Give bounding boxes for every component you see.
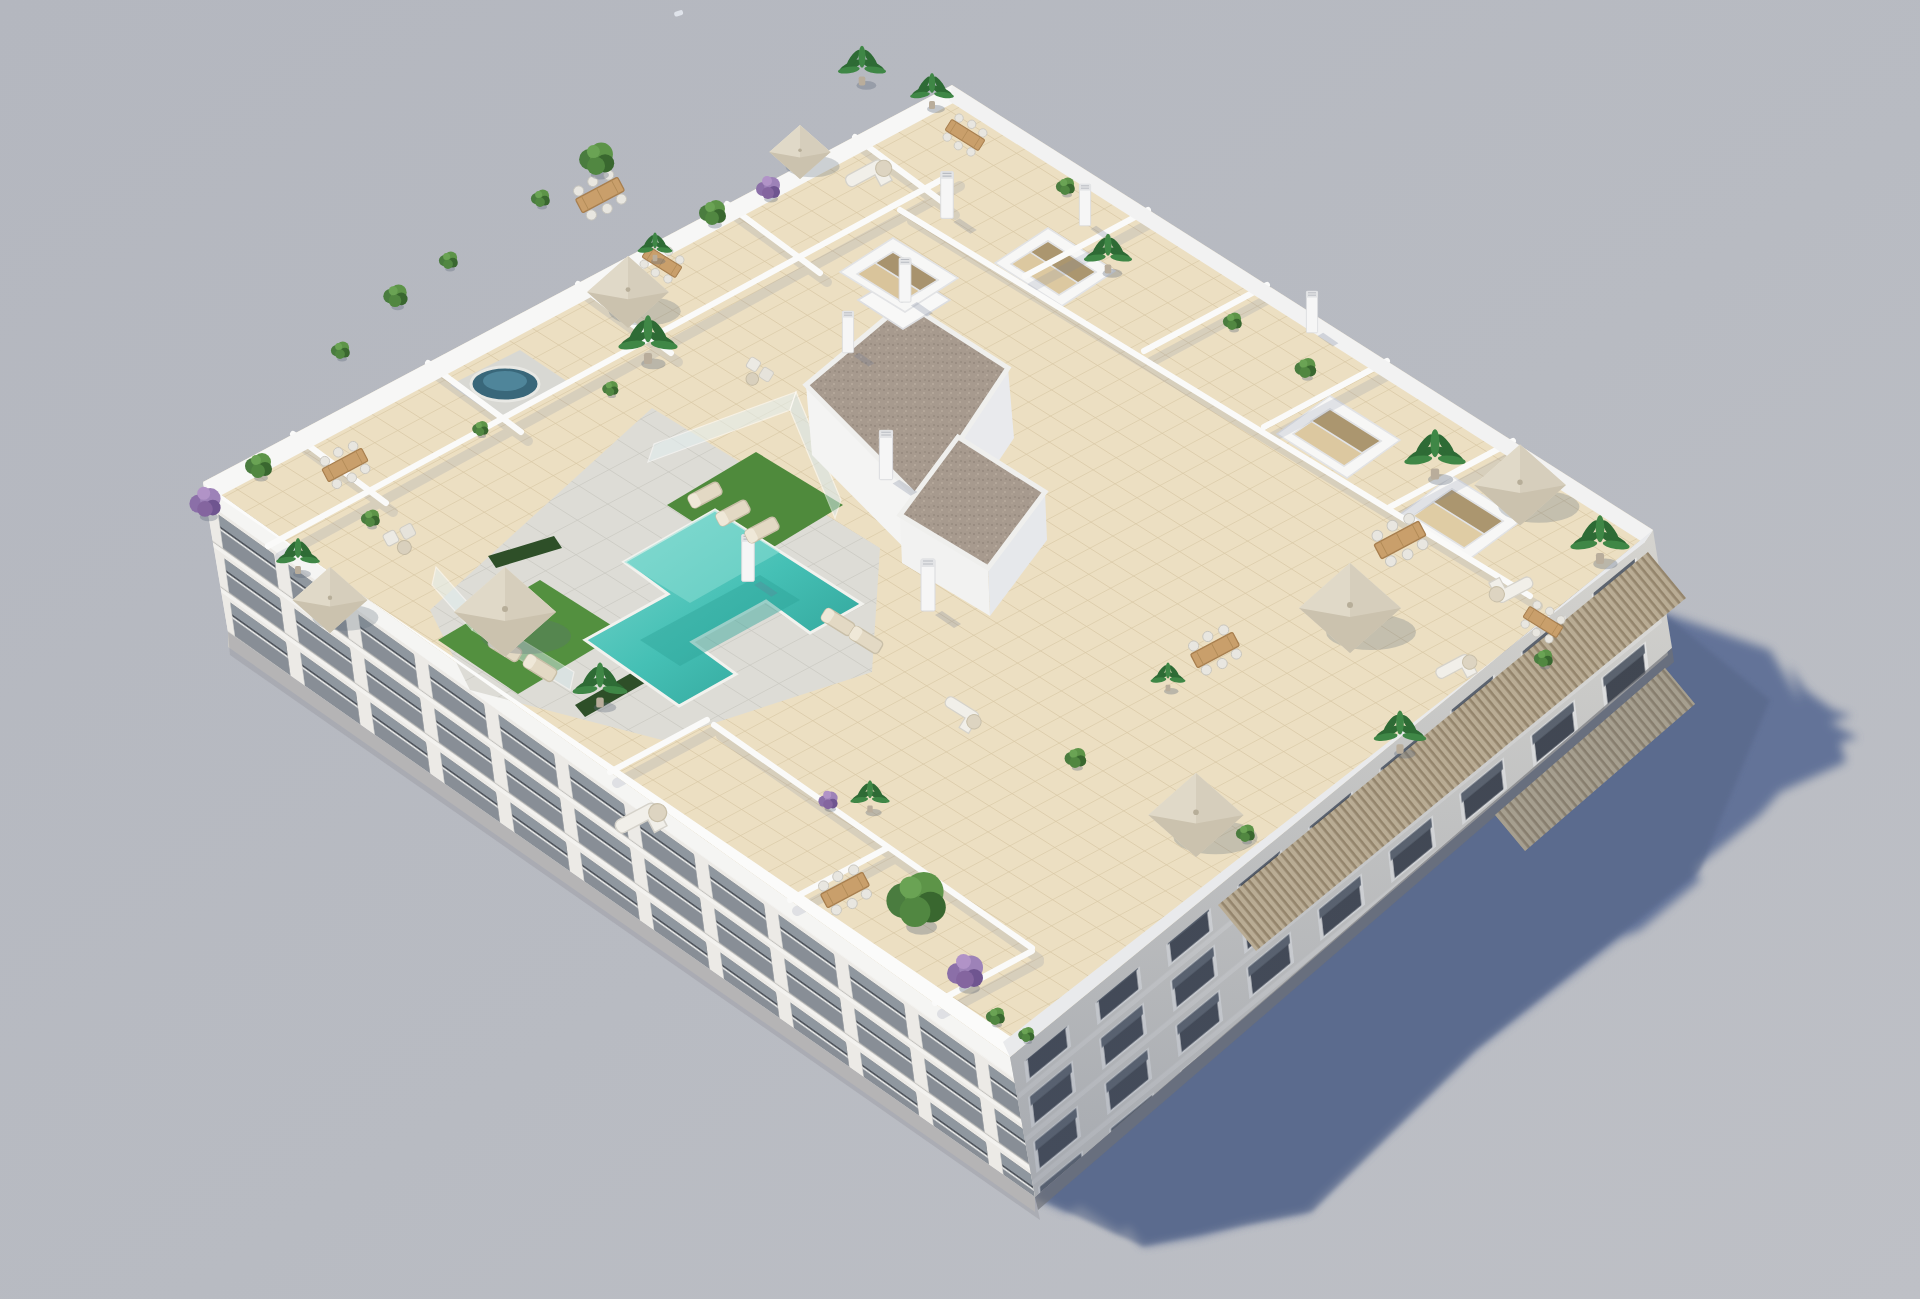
render-canvas <box>0 0 1920 1299</box>
building-aerial-render <box>0 0 1920 1299</box>
